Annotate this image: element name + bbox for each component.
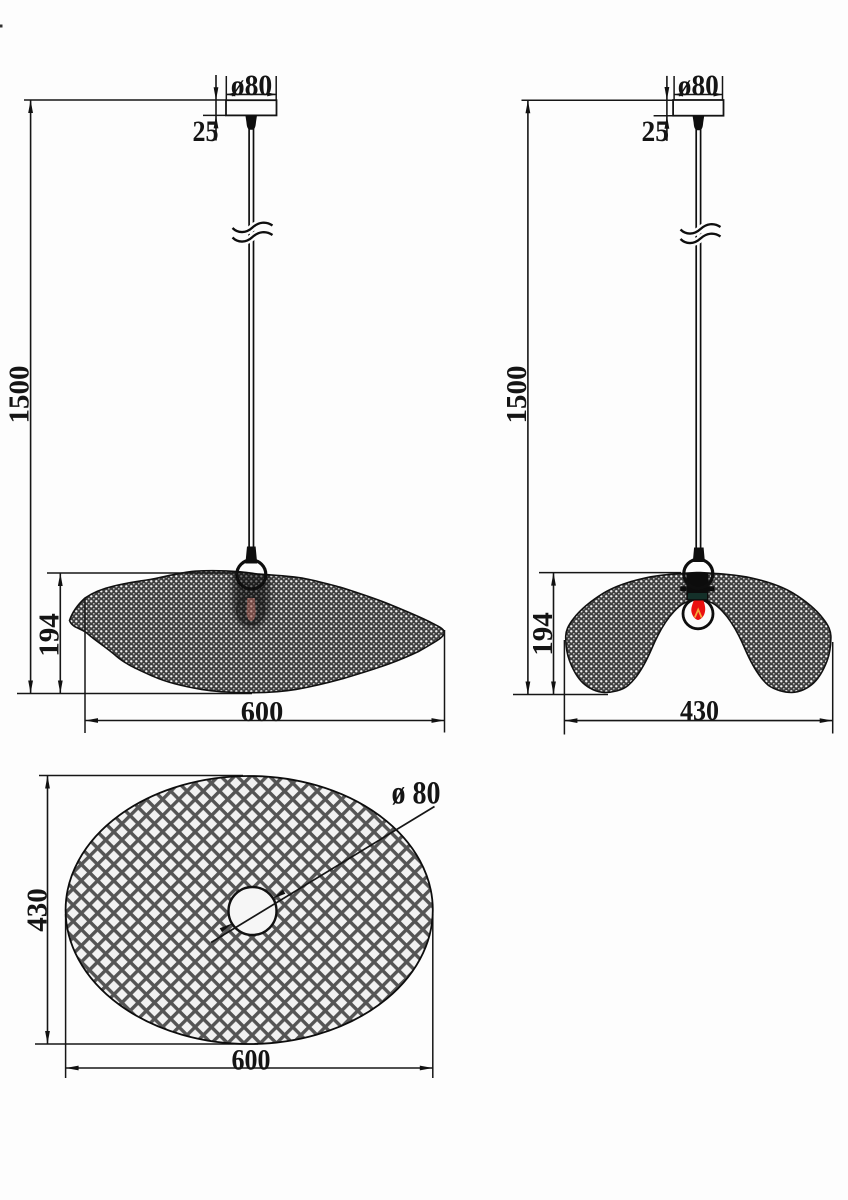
- svg-text:194: 194: [34, 613, 66, 657]
- svg-text:ø 80: ø 80: [392, 776, 441, 812]
- svg-text:1500: 1500: [4, 366, 36, 424]
- svg-text:ø80: ø80: [231, 69, 273, 102]
- svg-text:25: 25: [193, 115, 219, 148]
- svg-text:ø80: ø80: [678, 69, 719, 102]
- svg-text:430: 430: [22, 888, 54, 932]
- svg-text:430: 430: [680, 695, 719, 727]
- svg-text:600: 600: [232, 1044, 271, 1077]
- svg-text:194: 194: [527, 612, 559, 656]
- svg-text:1500: 1500: [501, 366, 533, 424]
- svg-text:600: 600: [241, 696, 284, 728]
- svg-text:25: 25: [642, 115, 670, 148]
